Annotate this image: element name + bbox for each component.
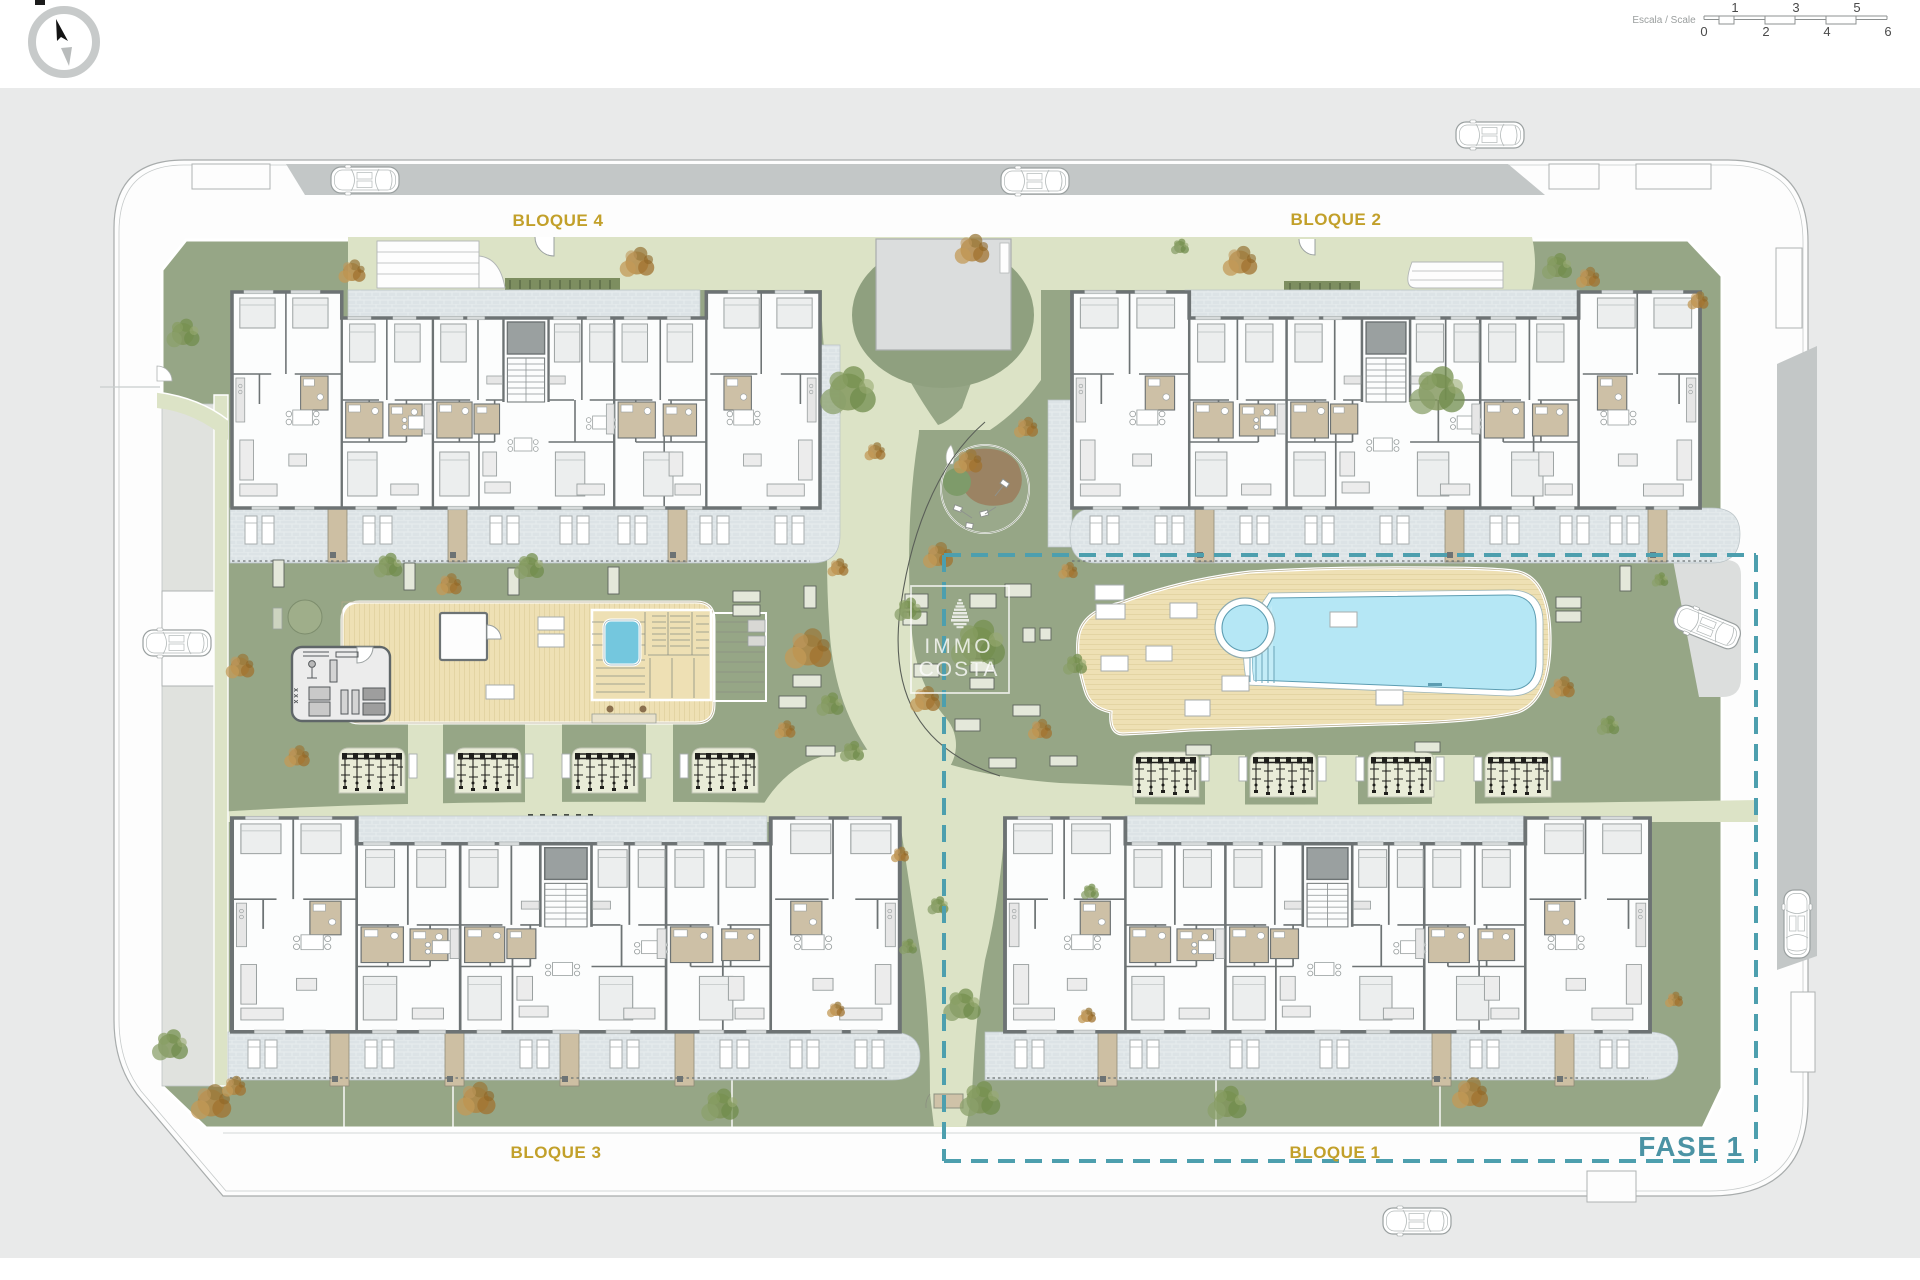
svg-text:1: 1 [1731, 0, 1738, 15]
svg-text:6: 6 [1884, 24, 1891, 39]
svg-text:BLOQUE 3: BLOQUE 3 [511, 1143, 602, 1162]
svg-text:4: 4 [1823, 24, 1830, 39]
svg-text:IMMO: IMMO [924, 635, 993, 658]
svg-text:0: 0 [1700, 24, 1707, 39]
svg-text:x x x: x x x [292, 688, 299, 704]
svg-text:Escala / Scale: Escala / Scale [1632, 15, 1696, 26]
svg-text:3: 3 [1792, 0, 1799, 15]
svg-text:FASE 1: FASE 1 [1638, 1131, 1743, 1162]
svg-text:5: 5 [1853, 0, 1860, 15]
svg-text:BLOQUE 4: BLOQUE 4 [513, 211, 604, 230]
svg-text:2: 2 [1762, 24, 1769, 39]
svg-text:COSTA: COSTA [919, 658, 1000, 681]
svg-text:BLOQUE 2: BLOQUE 2 [1291, 210, 1382, 229]
svg-text:BLOQUE 1: BLOQUE 1 [1290, 1143, 1381, 1162]
